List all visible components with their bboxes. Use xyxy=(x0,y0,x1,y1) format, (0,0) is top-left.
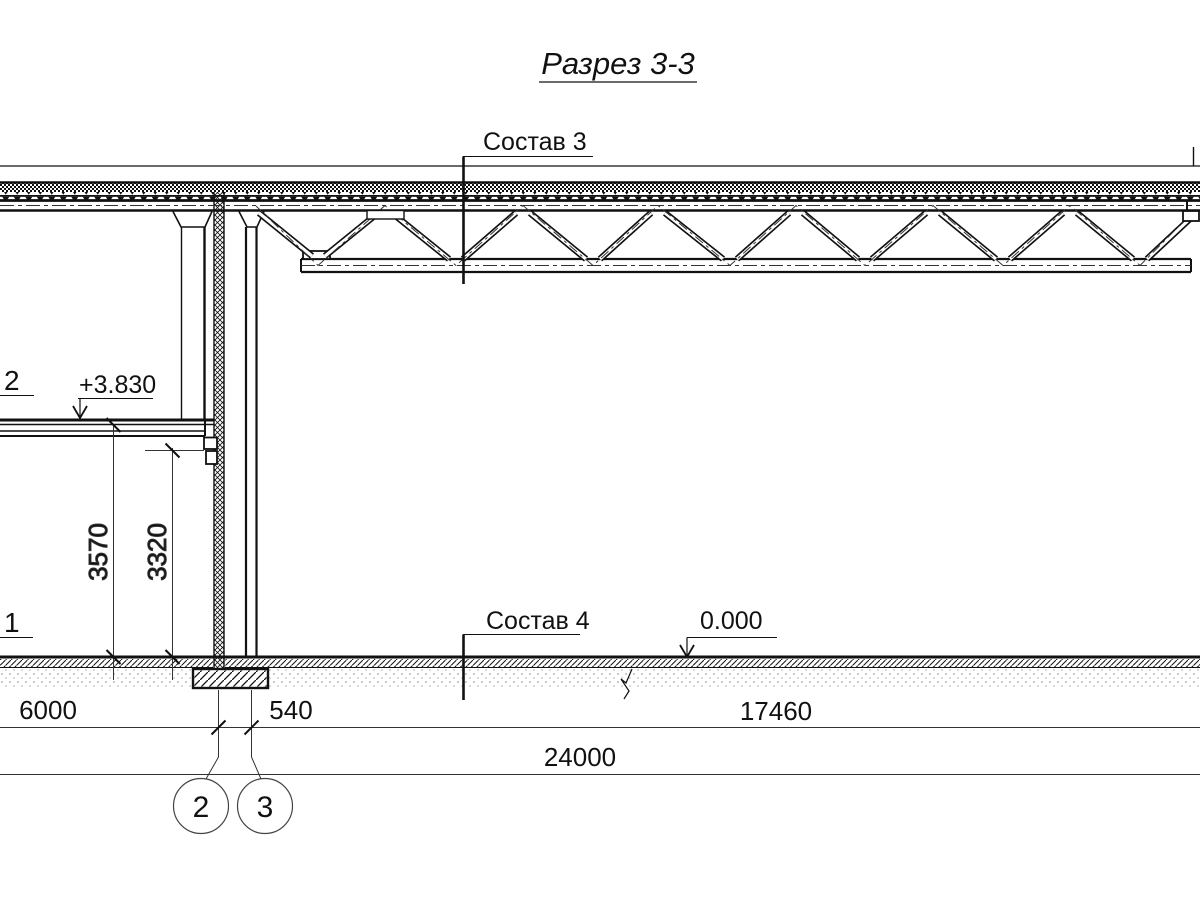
edge-label-lower: 1 xyxy=(4,607,20,638)
right-column xyxy=(239,212,264,657)
edge-callouts: 2 1 xyxy=(0,365,34,638)
left-column xyxy=(173,212,212,420)
floor-slab xyxy=(0,420,217,464)
dim-540: 540 xyxy=(269,695,312,725)
edge-label-upper: 2 xyxy=(4,365,20,396)
dim-24000: 24000 xyxy=(544,742,616,772)
roof-assembly xyxy=(0,147,1200,211)
section-3-3-drawing: Разрез 3-3 Состав 3 Состав 4 +3.830 0.00… xyxy=(0,0,1200,900)
roof-profiled-deck xyxy=(0,192,1200,200)
level-floor-value: +3.830 xyxy=(79,371,156,399)
slab-corbel-lower xyxy=(206,451,217,464)
title-block: Разрез 3-3 xyxy=(539,46,697,82)
dim-6000: 6000 xyxy=(19,695,77,725)
level-mark-floor: +3.830 xyxy=(73,371,156,418)
drawing-sheet: Разрез 3-3 Состав 3 Состав 4 +3.830 0.00… xyxy=(0,0,1200,900)
page-title: Разрез 3-3 xyxy=(541,46,695,81)
vertical-dimensions: 3570 3320 xyxy=(83,418,180,680)
sostav4-label: Состав 4 xyxy=(486,607,590,635)
dim-17460: 17460 xyxy=(740,696,812,726)
dim-3320: 3320 xyxy=(142,523,172,581)
dim-3570: 3570 xyxy=(83,523,113,581)
ground-slab-hatch-left xyxy=(0,659,213,667)
level-mark-ground: 0.000 xyxy=(680,607,777,657)
sostav3-label: Состав 3 xyxy=(483,128,587,156)
ground-slab-hatch-right xyxy=(225,659,1200,667)
roof-insulation-layer xyxy=(0,184,1200,193)
horizontal-dimensions: 6000 540 17460 24000 xyxy=(0,690,1200,775)
slab-corbel-upper xyxy=(204,438,217,450)
exterior-wall xyxy=(214,192,224,669)
top-gusset-plate xyxy=(367,211,404,220)
level-ground-value: 0.000 xyxy=(700,607,763,635)
left-column-haunch xyxy=(173,212,212,228)
grid-axis-2: 2 xyxy=(193,791,210,824)
truss-end-bracket xyxy=(1183,211,1199,221)
ground-base-layer xyxy=(0,669,1200,689)
grid-axis-3: 3 xyxy=(257,791,274,824)
grid-axes: 2 3 xyxy=(174,734,293,834)
